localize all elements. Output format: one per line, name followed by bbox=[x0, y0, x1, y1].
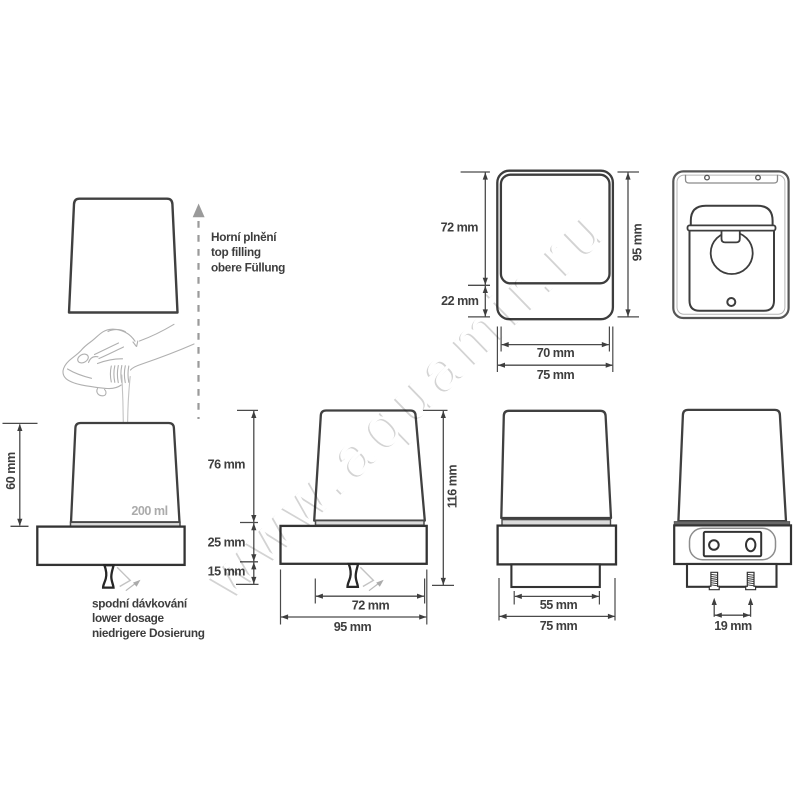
svg-text:75 mm: 75 mm bbox=[540, 619, 578, 633]
svg-text:95 mm: 95 mm bbox=[334, 620, 372, 634]
svg-text:76 mm: 76 mm bbox=[208, 458, 246, 472]
svg-text:70 mm: 70 mm bbox=[537, 346, 575, 360]
svg-text:60 mm: 60 mm bbox=[4, 452, 18, 490]
svg-text:obere Füllung: obere Füllung bbox=[211, 261, 285, 275]
svg-text:lower dosage: lower dosage bbox=[92, 611, 165, 625]
svg-text:top filling: top filling bbox=[211, 245, 261, 259]
svg-text:spodní dávkování: spodní dávkování bbox=[92, 597, 188, 611]
svg-text:72 mm: 72 mm bbox=[352, 599, 390, 613]
svg-text:55 mm: 55 mm bbox=[540, 598, 578, 612]
svg-text:75 mm: 75 mm bbox=[537, 368, 575, 382]
svg-text:Horní plnění: Horní plnění bbox=[211, 230, 277, 244]
svg-text:200 ml: 200 ml bbox=[131, 504, 167, 518]
svg-text:19 mm: 19 mm bbox=[714, 619, 752, 633]
svg-text:95 mm: 95 mm bbox=[631, 223, 645, 261]
svg-text:72 mm: 72 mm bbox=[441, 221, 479, 235]
svg-text:niedrigere Dosierung: niedrigere Dosierung bbox=[92, 626, 205, 640]
svg-text:116 mm: 116 mm bbox=[446, 465, 460, 509]
